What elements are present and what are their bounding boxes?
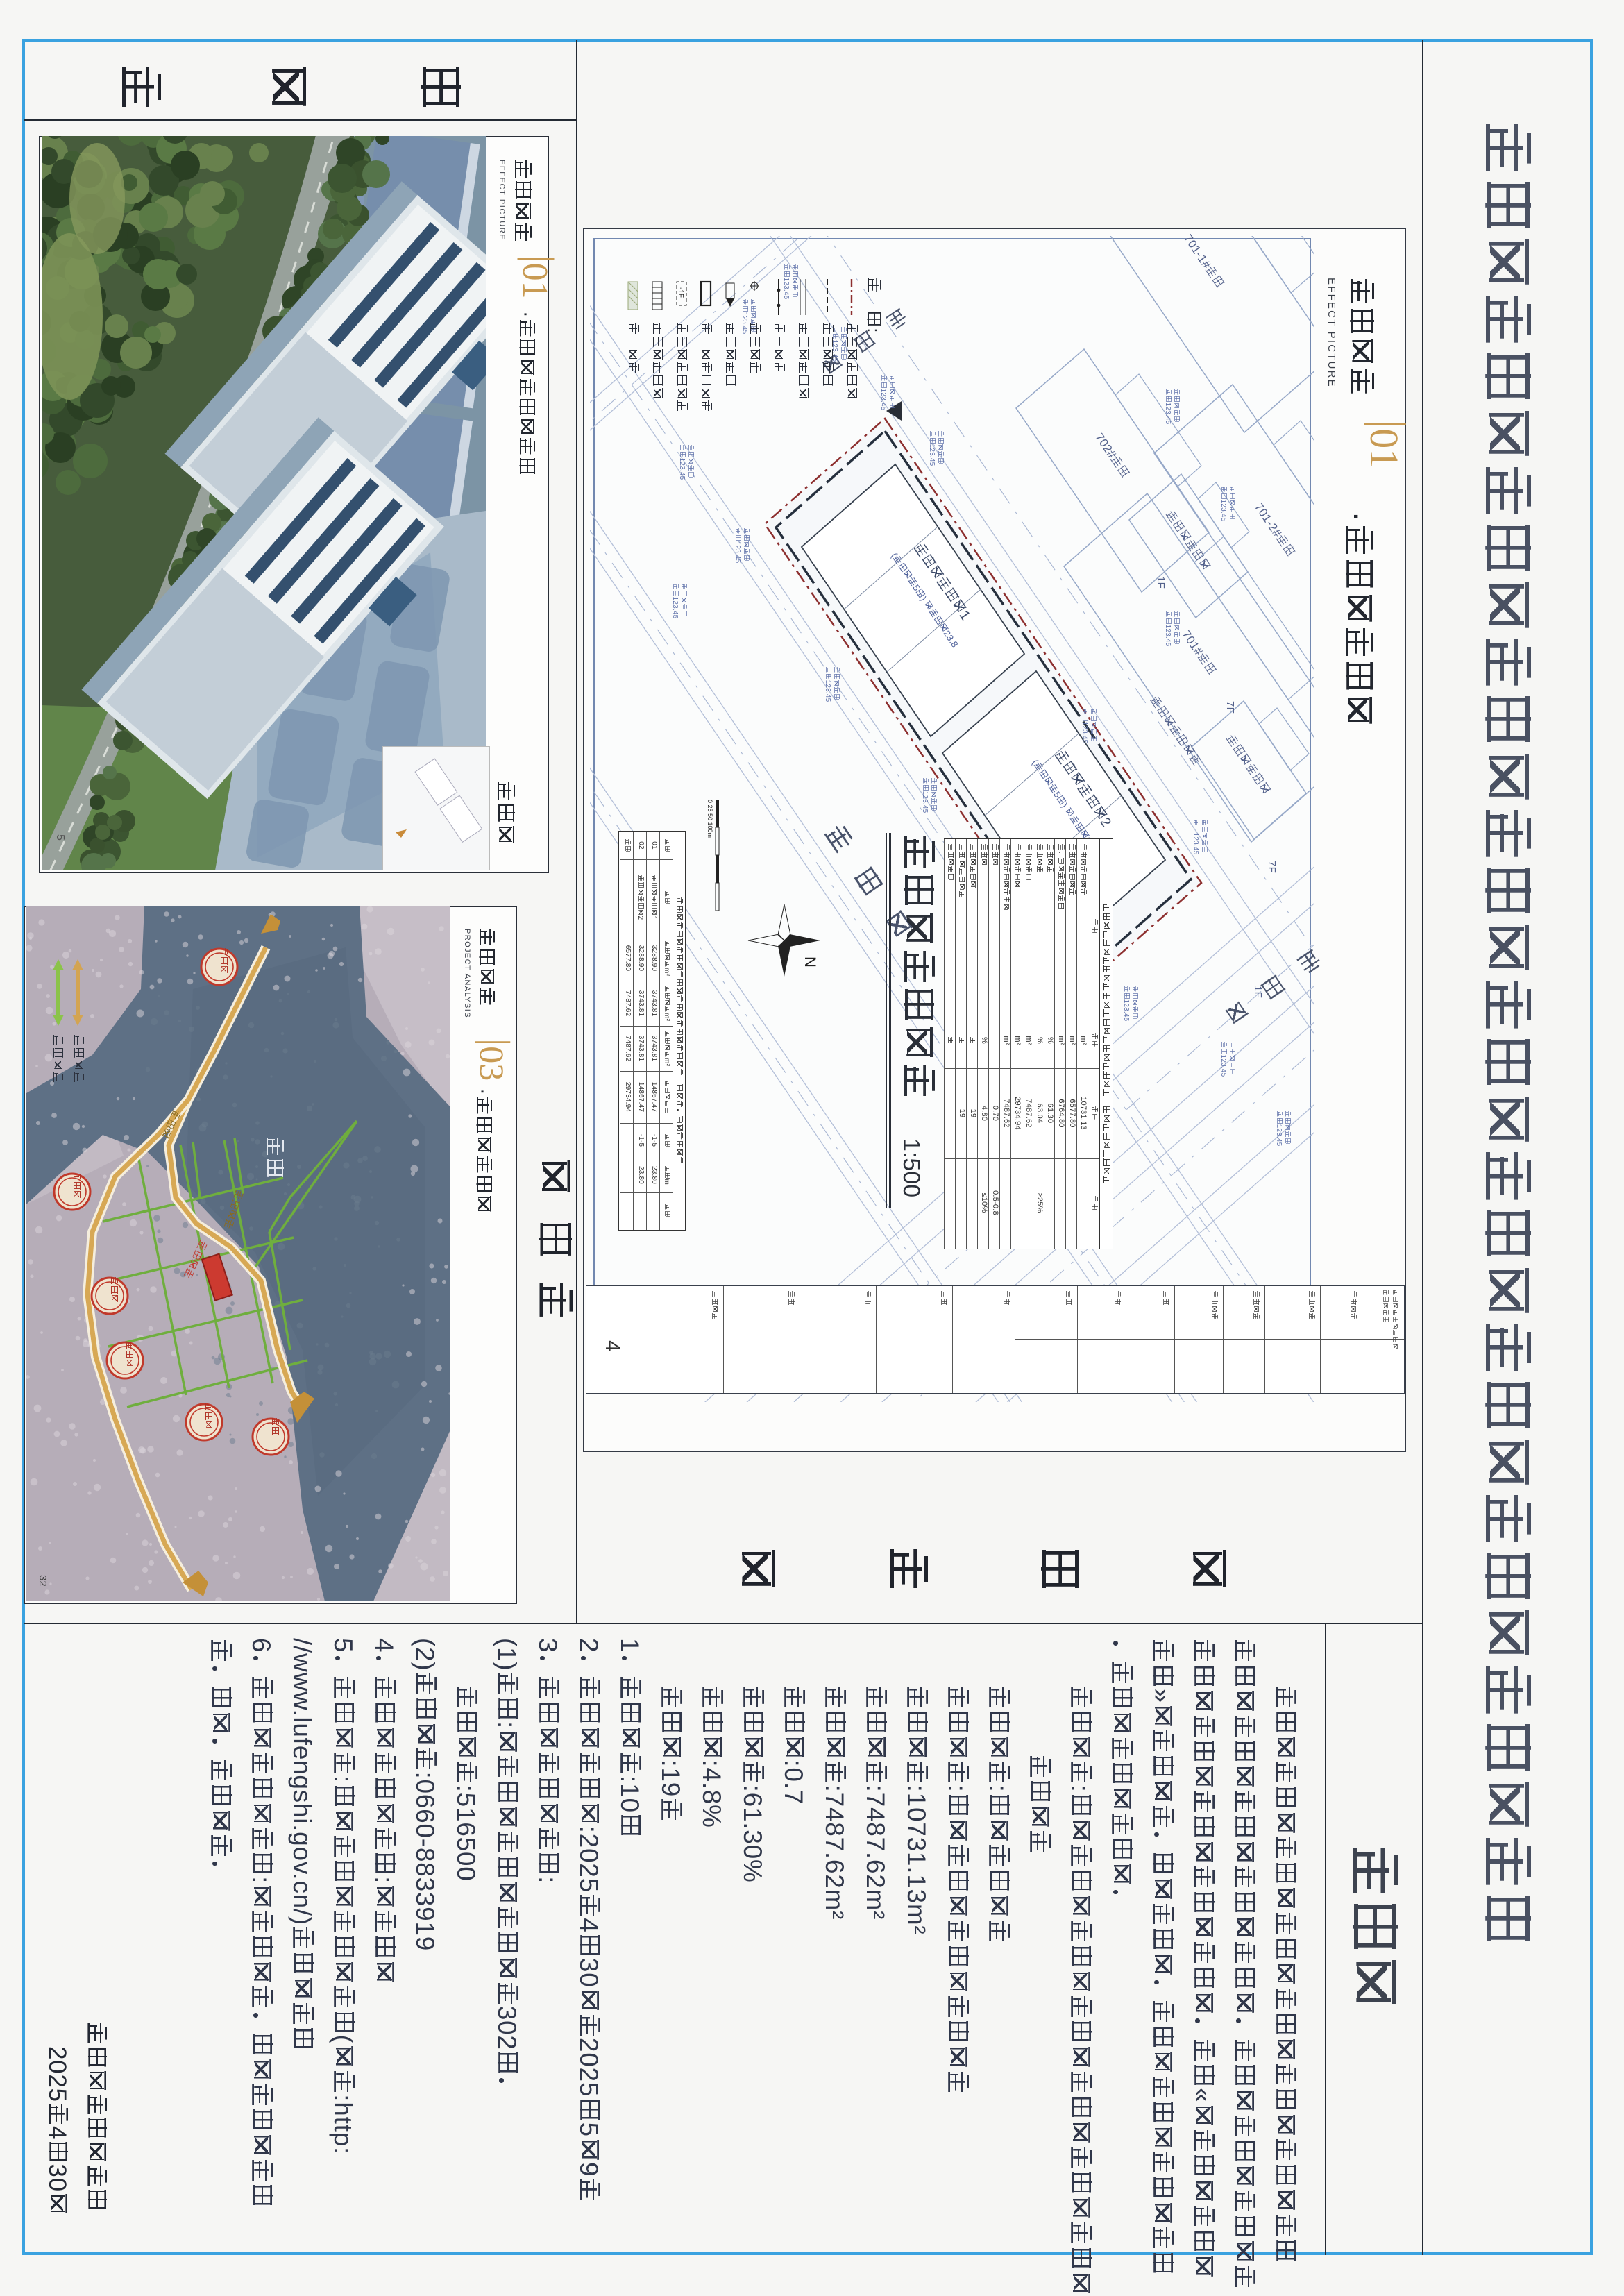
svg-text:0 25 50 100m: 0 25 50 100m (707, 800, 713, 838)
svg-text:-1F: -1F (677, 287, 684, 298)
svg-text:N: N (802, 956, 819, 968)
